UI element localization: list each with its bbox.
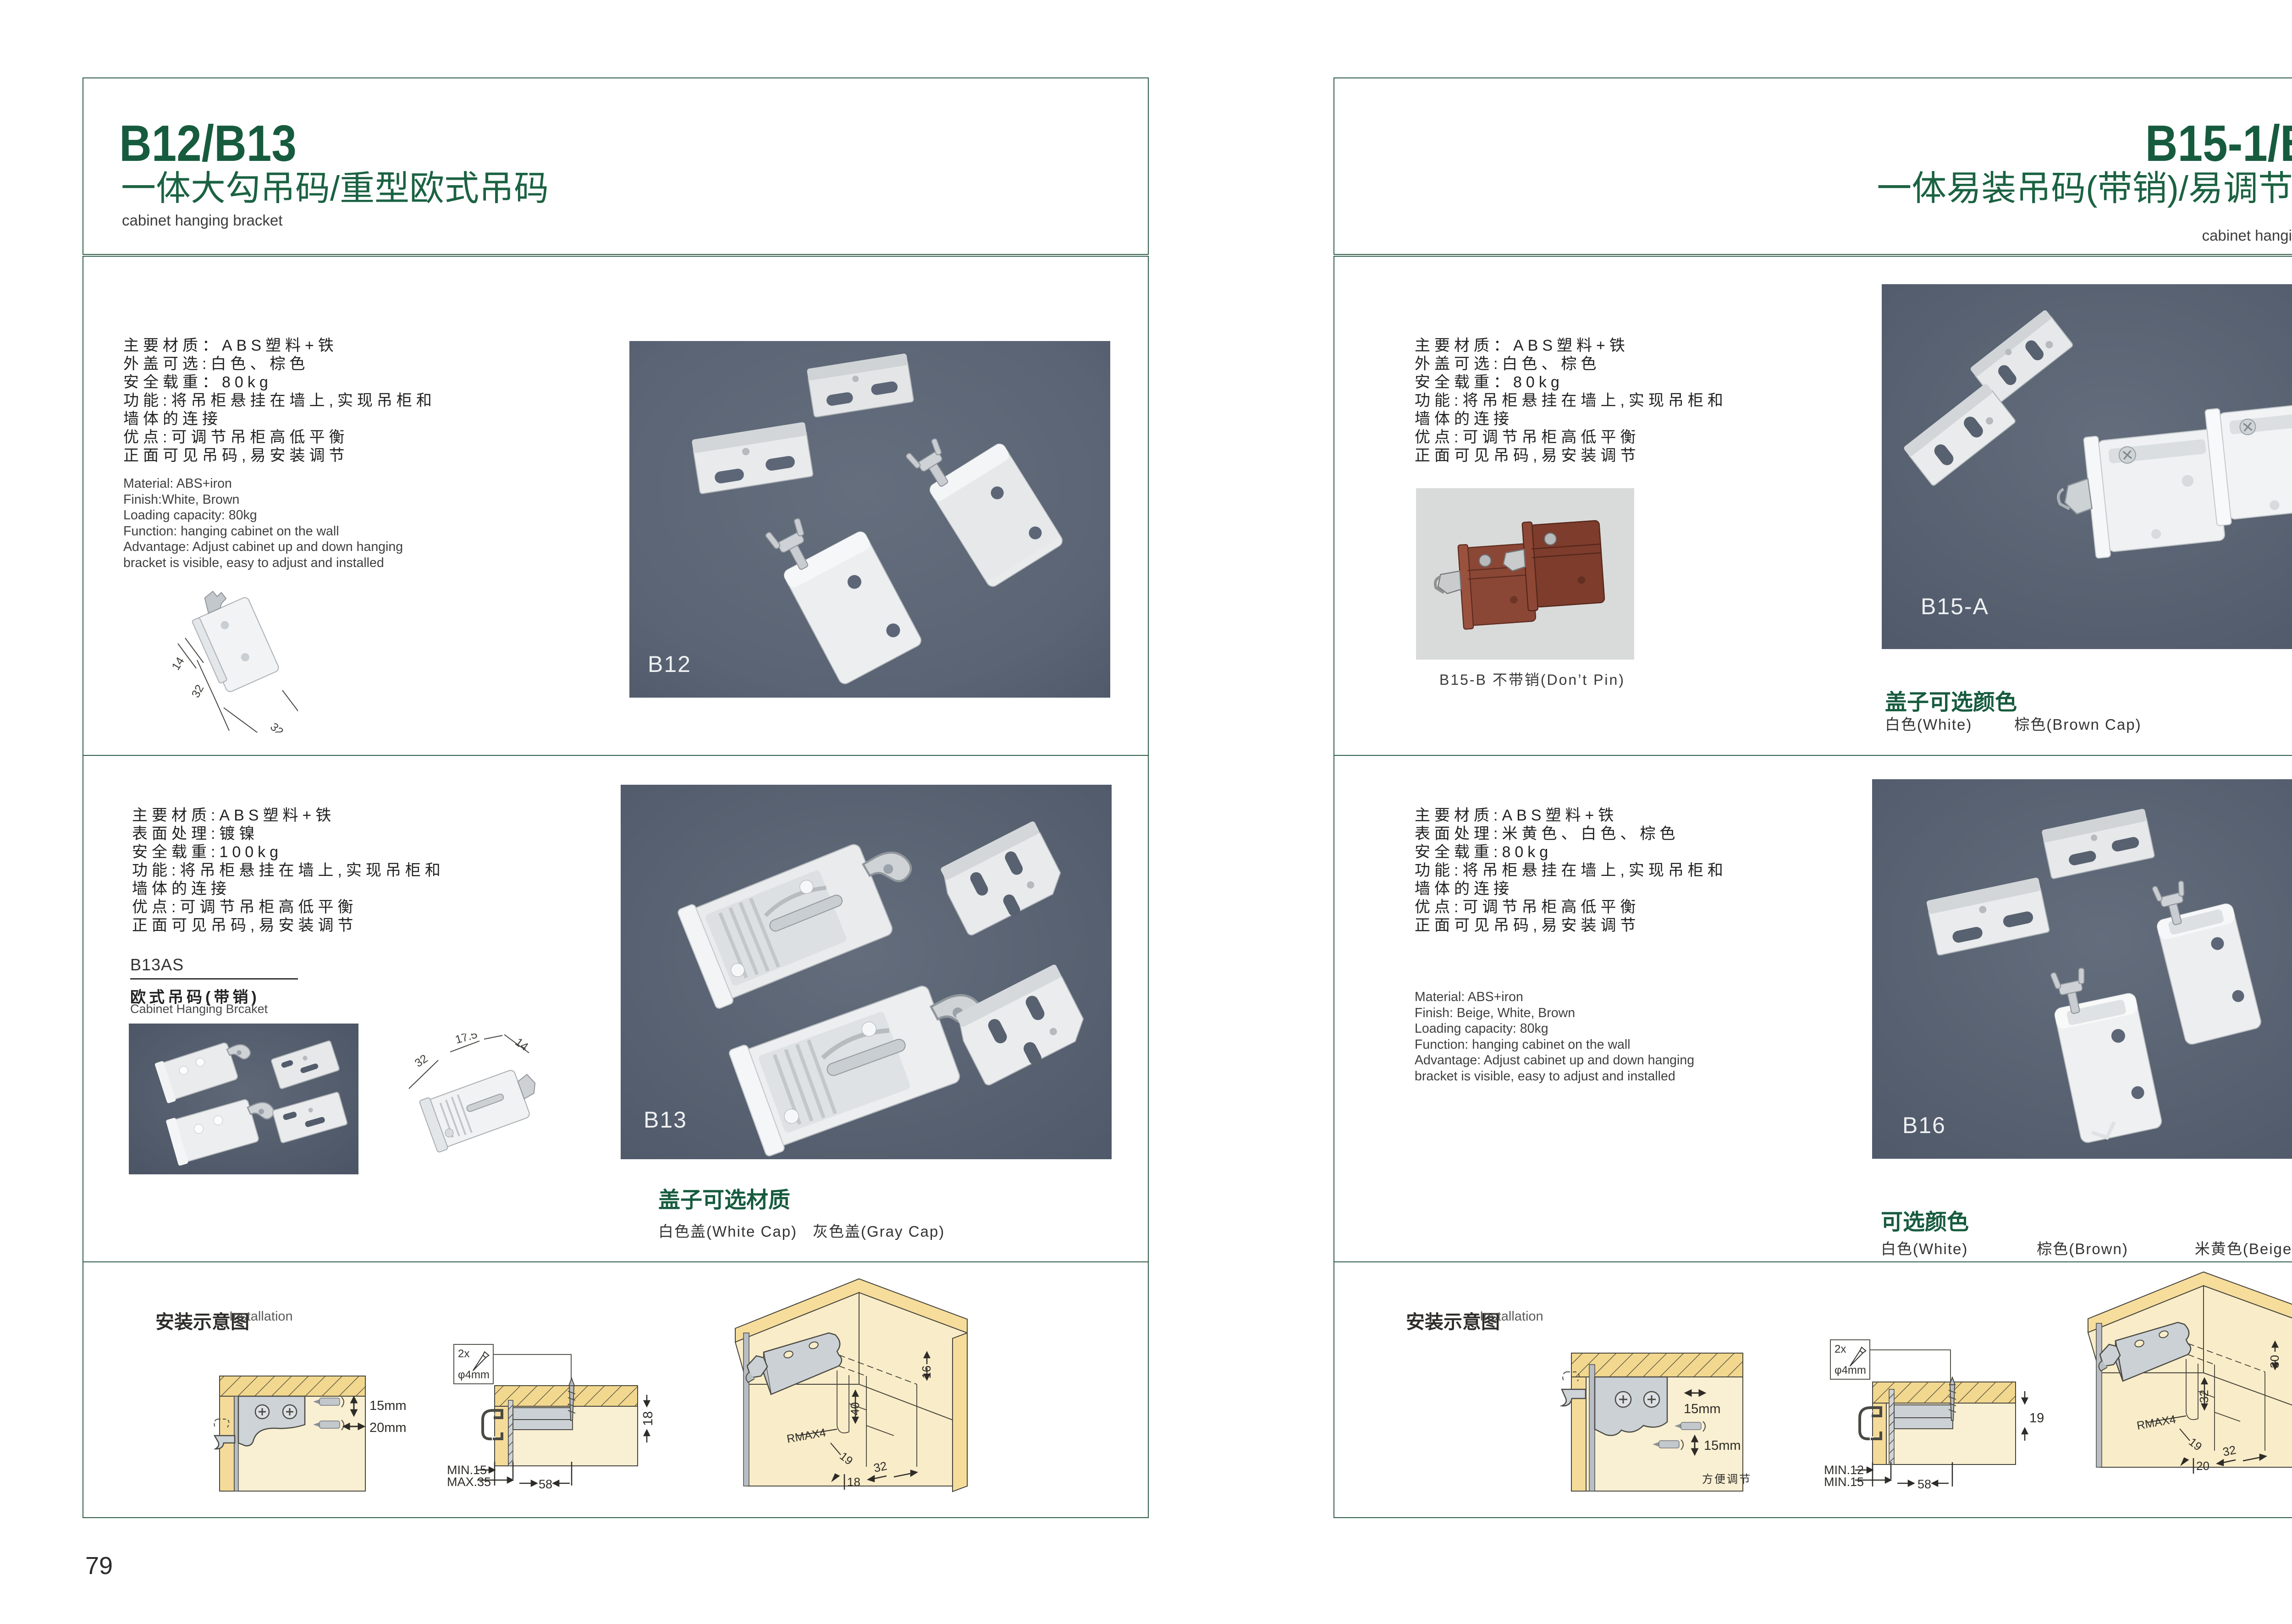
svg-text:32: 32 [413, 1052, 430, 1070]
svg-text:20: 20 [2196, 1459, 2209, 1473]
svg-text:B12: B12 [648, 651, 691, 677]
svg-text:16: 16 [920, 1365, 933, 1379]
svg-text:φ4mm: φ4mm [458, 1369, 490, 1381]
svg-text:30: 30 [2268, 1355, 2281, 1368]
svg-text:58: 58 [1917, 1477, 1931, 1491]
svg-text:15mm: 15mm [1684, 1402, 1721, 1416]
svg-text:15mm: 15mm [369, 1398, 407, 1413]
svg-text:32: 32 [2197, 1390, 2211, 1403]
svg-text:32: 32 [189, 683, 207, 700]
svg-text:φ4mm: φ4mm [1835, 1364, 1866, 1376]
svg-text:15mm: 15mm [1704, 1438, 1741, 1453]
svg-text:14: 14 [512, 1035, 530, 1053]
svg-text:40: 40 [848, 1402, 862, 1415]
svg-text:32: 32 [2221, 1443, 2237, 1459]
svg-text:58: 58 [539, 1477, 552, 1491]
svg-text:MIN.15: MIN.15 [1824, 1475, 1864, 1489]
svg-text:32: 32 [268, 721, 286, 732]
svg-text:18: 18 [641, 1411, 656, 1426]
svg-text:19: 19 [2029, 1411, 2044, 1426]
svg-text:20mm: 20mm [369, 1420, 407, 1435]
svg-text:2x: 2x [1835, 1343, 1846, 1355]
svg-text:MAX.35: MAX.35 [447, 1475, 491, 1489]
svg-text:14: 14 [170, 655, 187, 673]
svg-text:B16: B16 [1902, 1112, 1946, 1138]
svg-text:17.5: 17.5 [454, 1034, 479, 1046]
svg-text:32: 32 [872, 1459, 888, 1475]
svg-text:2x: 2x [458, 1348, 469, 1360]
svg-text:18: 18 [847, 1475, 860, 1489]
svg-text:方便调节: 方便调节 [1702, 1473, 1752, 1486]
svg-text:B13: B13 [644, 1107, 687, 1133]
svg-text:B15-A: B15-A [1921, 594, 1989, 619]
